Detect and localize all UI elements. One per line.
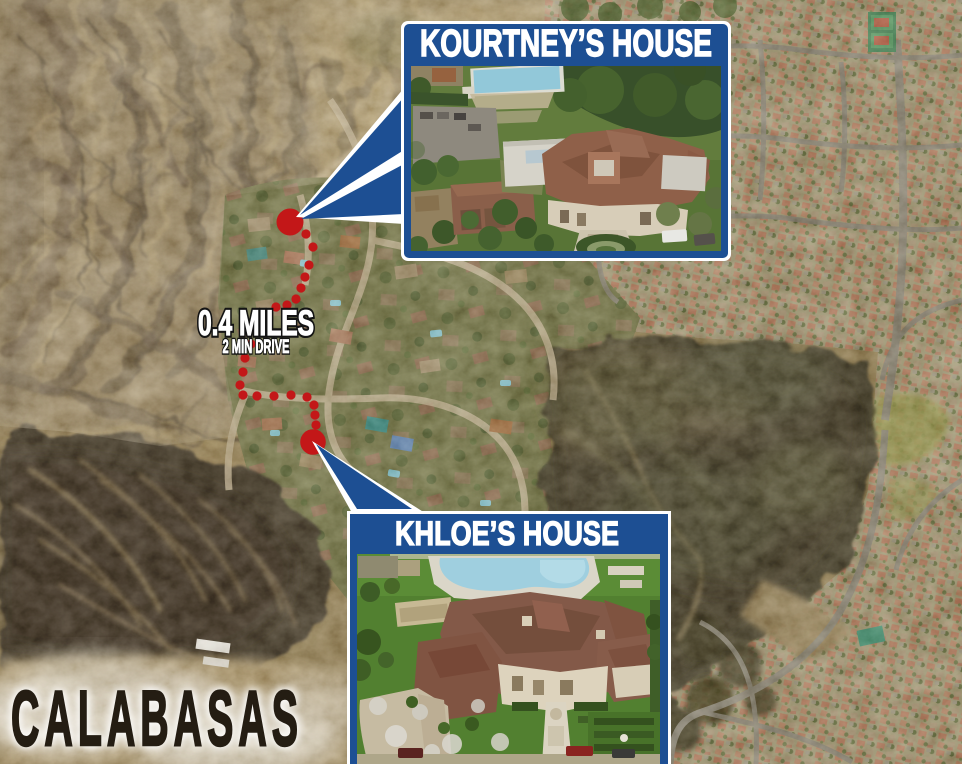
svg-text:2 MIN DRIVE: 2 MIN DRIVE bbox=[223, 337, 290, 358]
svg-text:CALABASAS: CALABASAS bbox=[11, 674, 303, 762]
svg-text:KHLOE’S HOUSE: KHLOE’S HOUSE bbox=[395, 515, 619, 553]
svg-text:KOURTNEY’S HOUSE: KOURTNEY’S HOUSE bbox=[420, 23, 712, 65]
